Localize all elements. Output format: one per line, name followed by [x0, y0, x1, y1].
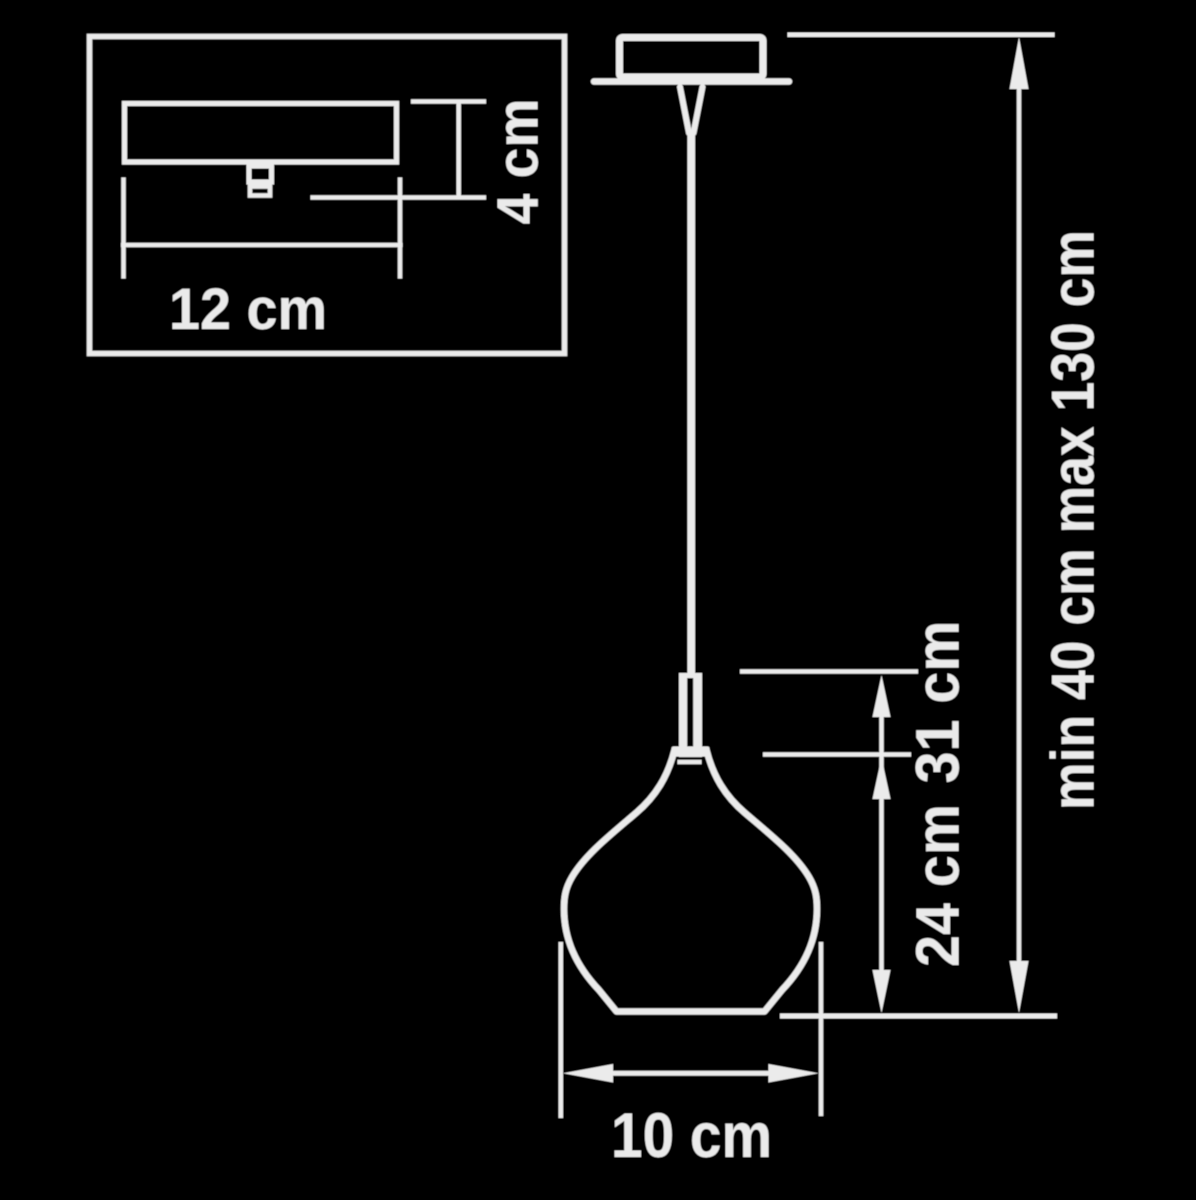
- svg-text:12 cm: 12 cm: [169, 277, 327, 342]
- svg-text:10 cm: 10 cm: [611, 1101, 772, 1171]
- svg-text:min 40 cm max 130 cm: min 40 cm max 130 cm: [1040, 230, 1107, 810]
- svg-text:24 cm: 24 cm: [904, 804, 972, 967]
- svg-text:4 cm: 4 cm: [486, 99, 551, 225]
- svg-text:31 cm: 31 cm: [904, 621, 972, 784]
